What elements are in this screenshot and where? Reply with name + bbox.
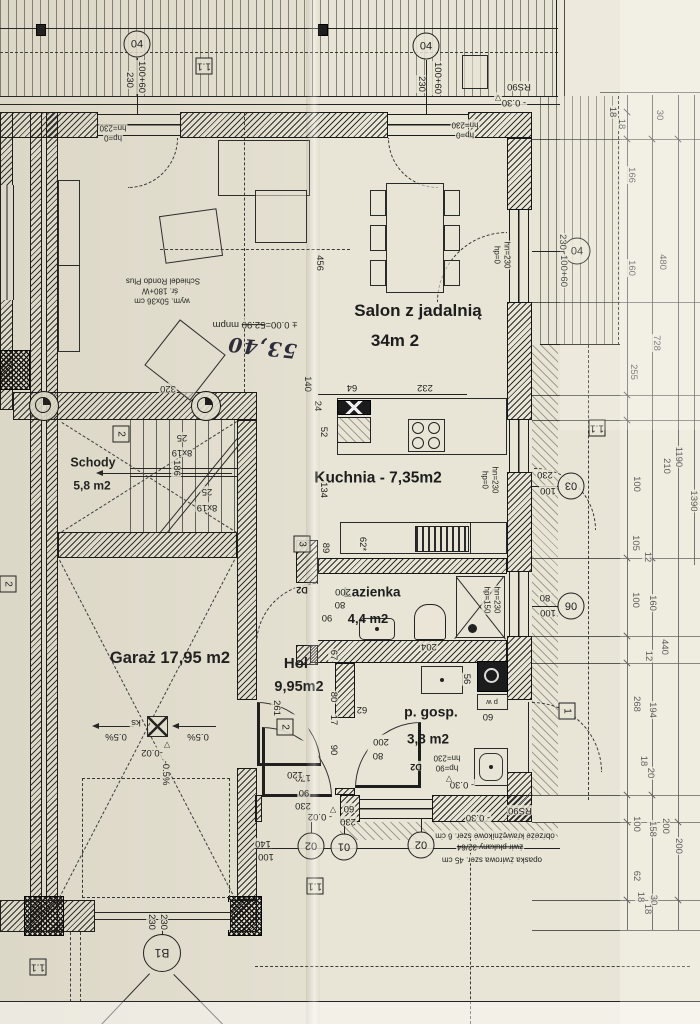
garage-door-sightline xyxy=(173,974,225,1024)
slope-arrow xyxy=(92,723,99,729)
wall xyxy=(507,138,532,210)
boiler-dot xyxy=(440,678,444,682)
site-rs90: RS90 xyxy=(506,81,532,91)
coffee-table xyxy=(159,208,223,264)
room-label-schody: Schody xyxy=(69,456,116,470)
dim-ext-line xyxy=(532,663,700,664)
chair xyxy=(370,225,386,251)
window-sill-note: hn=230 xyxy=(502,241,511,270)
level-unit: mnpm xyxy=(213,319,239,330)
dim-label: 728 xyxy=(651,334,661,352)
stove-burner xyxy=(412,437,424,449)
slope-dir-note: -0.5% xyxy=(160,760,170,787)
dim-label: 166 xyxy=(626,166,636,184)
site-band-note: opaska żwirowa szer. 45 cm xyxy=(441,855,543,864)
dim-label: 18 xyxy=(642,903,652,916)
window-sill-note: hp=0 xyxy=(480,470,489,490)
dim-label: 80 xyxy=(372,750,385,760)
window-sill-note: hn=230 xyxy=(492,586,501,615)
dim-label: 210 xyxy=(661,457,671,475)
door-type-marker: 2 xyxy=(277,719,294,736)
wall xyxy=(237,420,257,700)
dim-label: 80 xyxy=(328,691,338,704)
dim-label: 230 xyxy=(339,816,357,826)
dim-label: 160 xyxy=(626,259,636,277)
window-sill-note: hn=230 xyxy=(490,466,499,495)
party-wall xyxy=(30,112,42,932)
wall xyxy=(180,112,388,138)
roof-edge-line xyxy=(0,104,560,105)
stair-width-note: 25 xyxy=(201,486,214,496)
level-flag: ▽ xyxy=(329,805,337,814)
slope-arrow xyxy=(172,723,179,729)
property-dashed-line xyxy=(255,966,690,967)
level-prefix: ± 0.00= xyxy=(265,319,297,330)
window-sill-note: hp=0 xyxy=(492,245,501,265)
door-arc xyxy=(388,138,438,188)
dim-label: 12 xyxy=(642,551,652,564)
counter-divider xyxy=(470,522,471,554)
dim-label: 80 xyxy=(539,592,552,602)
dim-label: 80 xyxy=(334,599,347,609)
dishwasher xyxy=(415,526,469,552)
door-type-marker: 1 xyxy=(559,703,576,720)
dim-label: 90 xyxy=(321,612,334,622)
level-flag: ▽ xyxy=(494,93,502,102)
stove-burner xyxy=(412,422,424,434)
dim-label: 18 xyxy=(635,891,645,904)
dim-label: 134 xyxy=(318,481,328,499)
dim-label: 17 xyxy=(328,714,338,727)
party-wall xyxy=(46,112,58,932)
window-marker: 04 xyxy=(413,33,440,60)
room-area-pgosp: 3,8 m2 xyxy=(406,733,450,748)
dim-label: 64 xyxy=(346,382,359,392)
dim-ext-line xyxy=(532,558,700,559)
dim-label: 67 xyxy=(328,649,338,662)
slope-arrow-line xyxy=(176,726,216,727)
slope-note: 0.5% xyxy=(104,731,128,741)
stair-rail xyxy=(130,468,237,469)
dim-label: 100+60 xyxy=(136,60,146,94)
window xyxy=(509,572,529,636)
roof-detail-box xyxy=(462,55,488,89)
dim-label: 230 xyxy=(536,469,554,479)
dim-label: 320 xyxy=(159,383,177,393)
drain-note: ks xyxy=(130,717,142,727)
door-marker: 01 xyxy=(331,834,358,861)
dim-label: 194 xyxy=(647,701,657,719)
car-space-outline xyxy=(82,778,230,898)
window-marker: 04 xyxy=(124,31,151,58)
below-plan-dashed xyxy=(80,932,81,1002)
garage-door-sightline xyxy=(100,973,150,1024)
stove-burner xyxy=(428,437,440,449)
vent-grille xyxy=(337,417,371,443)
dim-label: 12 xyxy=(643,650,653,663)
stove-burner xyxy=(428,422,440,434)
dim-label: 230 xyxy=(146,913,156,931)
cabinet xyxy=(58,180,80,352)
dim-ext-line xyxy=(532,900,700,901)
dim-label: 268 xyxy=(631,695,641,713)
roof-edge-line xyxy=(564,0,565,96)
dim-label: 120 xyxy=(286,769,304,779)
dim-label: 230 xyxy=(158,913,168,931)
chimney-note-line1: Schiedel Rondo Plus xyxy=(125,276,201,285)
wall xyxy=(58,532,237,558)
dim-label: 230 xyxy=(557,233,567,251)
window-sill-note: hp=0 xyxy=(103,133,123,142)
window-marker: 02 xyxy=(408,832,435,859)
sheet-line xyxy=(0,1001,700,1002)
dim-ext-line xyxy=(532,930,700,931)
terrace-dashed-edge xyxy=(618,96,619,345)
dim-label: 480 xyxy=(657,253,667,271)
chair xyxy=(370,190,386,216)
dim-label: 200 xyxy=(660,817,670,835)
site-level: - 0.30 xyxy=(501,97,527,107)
window-marker: 06 xyxy=(558,593,585,620)
washbasin-drain xyxy=(375,627,379,631)
roof-dashed-line xyxy=(0,52,558,53)
axis-dashed-line xyxy=(470,838,471,1024)
handwritten-level: 53,40 xyxy=(225,332,299,361)
dim-label: 100+60 xyxy=(558,254,568,288)
dim-label: 100 xyxy=(631,815,641,833)
detail-marker: 1.1 xyxy=(196,58,213,75)
site-gravel-note: żwir płukany 32/64 xyxy=(456,842,524,851)
dim-label: 158 xyxy=(647,820,657,838)
site-rs90: RS90 xyxy=(507,805,533,815)
chimney-note-line3: wym. 50x36 cm xyxy=(133,296,191,305)
dim-label: 261 xyxy=(271,699,281,717)
room-label-salon: Salon z jadalnią xyxy=(353,302,483,320)
dim-label: 100+60 xyxy=(432,61,442,95)
dim-label: 100 xyxy=(257,851,275,861)
toilet xyxy=(414,604,446,640)
window-sill-note: hp=0 xyxy=(455,130,475,139)
level-note: ± 0.00=52.90 mnpm xyxy=(212,319,299,329)
room-label-garaz: Garaż 17,95 m2 xyxy=(109,650,231,668)
room-area-salon: 34m 2 xyxy=(370,332,420,350)
wall xyxy=(310,640,507,663)
dining-table xyxy=(386,183,444,293)
terrace-door-window xyxy=(509,210,529,302)
dim-ext-line xyxy=(532,395,700,396)
room-area-hol: 9,95m2 xyxy=(273,680,324,696)
dim-ext-line xyxy=(532,795,700,796)
dim-label: 200 xyxy=(334,586,352,596)
rafter-block xyxy=(318,24,328,36)
pw-note: p w xyxy=(485,698,499,706)
dim-chain-line xyxy=(627,95,628,930)
floor-plan-sheet: Salon z jadalnią 34m 2 Kuchnia - 7,35m2 … xyxy=(0,0,700,1024)
door-label: D2 xyxy=(295,584,309,594)
dim-label: 456 xyxy=(314,254,324,272)
dim-ext-line xyxy=(532,822,700,823)
dim-label: 60 xyxy=(482,711,495,721)
chimney-note-line2: śr. 180+W xyxy=(141,286,179,295)
dim-label: 20 xyxy=(645,767,655,780)
dim-label: 440 xyxy=(659,638,669,656)
window-sill-note: hn=230 xyxy=(99,123,128,132)
site-level: - 0.30 xyxy=(465,812,491,822)
wall xyxy=(507,636,532,700)
dim-label: 232 xyxy=(416,382,434,392)
dim-ext-line xyxy=(532,302,700,303)
wall xyxy=(507,472,532,572)
window xyxy=(509,420,529,472)
dim-label: 105 xyxy=(630,534,640,552)
stair-walkline xyxy=(100,473,232,474)
dim-label: 100 xyxy=(539,607,557,617)
dim-label: 100 xyxy=(539,485,557,495)
site-edge-note: obrzeże krawężnikowe szer. 6 cm xyxy=(434,831,556,840)
washer-dot xyxy=(489,765,493,769)
dim-label: 100 xyxy=(630,591,640,609)
door-opening xyxy=(237,700,257,768)
neighbor-chimney-block xyxy=(0,350,30,390)
dim-label: 1390 xyxy=(688,489,698,512)
room-area-schody: 5,8 m2 xyxy=(72,480,111,493)
vent-circle xyxy=(29,391,59,421)
slope-note: 0.5% xyxy=(186,731,210,741)
vent-core xyxy=(197,397,213,413)
dim-label: 186 xyxy=(171,459,181,477)
door-leaf xyxy=(528,702,529,772)
wall xyxy=(237,768,257,900)
rafter-block xyxy=(36,24,46,36)
window-marker: 03 xyxy=(558,473,585,500)
dim-label: 230 xyxy=(416,75,426,93)
wall xyxy=(318,558,507,574)
furnace-ring xyxy=(484,668,499,683)
window-sill-note: hp=150 xyxy=(482,586,491,615)
dim-label: 62 xyxy=(631,870,641,883)
level-value-struck: 52.90 xyxy=(242,319,266,330)
stair-count-note: 8x19 xyxy=(196,502,219,512)
roof-edge-line xyxy=(556,0,557,96)
dim-label: 90 xyxy=(298,787,311,797)
detail-marker: 1.1 xyxy=(307,878,324,895)
chair xyxy=(444,225,460,251)
garage-door-marker: B1 xyxy=(143,934,181,972)
chair xyxy=(370,260,386,286)
dim-label: 200 xyxy=(372,736,390,746)
dim-label: 18 xyxy=(638,755,648,768)
dim-label: 62 xyxy=(356,704,369,714)
stair-count-note: 8x19 xyxy=(171,447,194,457)
dim-line xyxy=(318,394,467,395)
dim-label: 18 xyxy=(607,106,617,119)
dim-label: 230 xyxy=(124,71,134,89)
dim-label: 1190 xyxy=(673,446,683,468)
dim-label: 100 xyxy=(631,475,641,493)
level-flag: ▽ xyxy=(445,774,453,783)
axis-line xyxy=(160,249,350,250)
roof-edge-line xyxy=(0,28,558,29)
detail-marker: 1.1 xyxy=(589,420,606,437)
dim-label: 62* xyxy=(357,536,367,552)
window xyxy=(360,799,432,819)
door-type-marker: 2 xyxy=(113,426,130,443)
level-note-garage: -0.02 xyxy=(140,747,164,757)
dim-label: 200 xyxy=(673,837,683,855)
stair-width-note: 25 xyxy=(176,432,189,442)
shower-drain xyxy=(468,624,477,633)
opening-marker: 3 xyxy=(294,536,311,553)
level-flag: ▽ xyxy=(163,740,171,749)
dim-chain-line xyxy=(678,95,679,930)
dim-chain-line xyxy=(652,95,653,930)
marker-leader xyxy=(532,251,564,252)
dim-label: 56 xyxy=(461,673,471,686)
floor-drain xyxy=(147,716,168,737)
wall xyxy=(507,302,532,420)
dim-label: 52 xyxy=(318,426,328,439)
dim-label: 204 xyxy=(420,641,438,651)
door-arc xyxy=(128,138,178,188)
slope-arrow-line xyxy=(96,726,134,727)
wall xyxy=(335,788,355,795)
chimney-diamond xyxy=(144,319,225,400)
roof-edge-line xyxy=(0,96,558,97)
door-type-marker: 2 xyxy=(0,576,17,593)
dim-label: 18 xyxy=(616,118,626,131)
terrace-hatch-strip xyxy=(540,96,618,344)
window xyxy=(0,185,14,300)
dim-label: 90 xyxy=(328,744,338,757)
sofa xyxy=(218,140,310,196)
corner-post xyxy=(228,896,262,936)
room-label-pgosp: p. gosp. xyxy=(403,704,459,719)
corner-post xyxy=(24,896,64,936)
cabinet-divider xyxy=(58,265,80,266)
dim-ext-line xyxy=(532,420,700,421)
dim-label: 30 xyxy=(654,109,664,122)
stair-arrow xyxy=(96,470,103,476)
dim-label: 140 xyxy=(254,838,272,848)
chair xyxy=(444,190,460,216)
vent-circle xyxy=(191,391,221,421)
dim-label: 89 xyxy=(320,542,330,555)
window-sill-note: hn=230 xyxy=(451,120,480,129)
dim-label: 140 xyxy=(302,375,312,393)
dim-ext-line xyxy=(532,636,700,637)
sofa xyxy=(255,190,307,243)
vent-core xyxy=(35,397,51,413)
dim-ext-line xyxy=(600,92,700,93)
dim-label: 24 xyxy=(312,400,322,413)
dim-label: 230 xyxy=(294,800,312,810)
below-plan-dashed xyxy=(70,932,71,1002)
room-area-lazienka: 4,4 m2 xyxy=(347,612,389,626)
dim-ext-line xyxy=(532,139,700,140)
dim-label: 60 xyxy=(343,803,356,813)
room-label-hol: Hol xyxy=(283,656,309,672)
window-marker: 02 xyxy=(298,833,325,860)
duct-shaft xyxy=(337,400,371,415)
wall xyxy=(255,795,262,822)
dim-label: 160 xyxy=(647,594,657,612)
detail-marker: 1.1 xyxy=(30,959,47,976)
door-label: D2 xyxy=(409,761,423,771)
chair xyxy=(444,260,460,286)
dim-label: 255 xyxy=(628,363,638,381)
window-sill-note: hn=230 xyxy=(433,753,462,762)
window-sill-note: hp=90 xyxy=(435,763,459,772)
room-label-kuchnia: Kuchnia - 7,35m2 xyxy=(313,471,443,488)
